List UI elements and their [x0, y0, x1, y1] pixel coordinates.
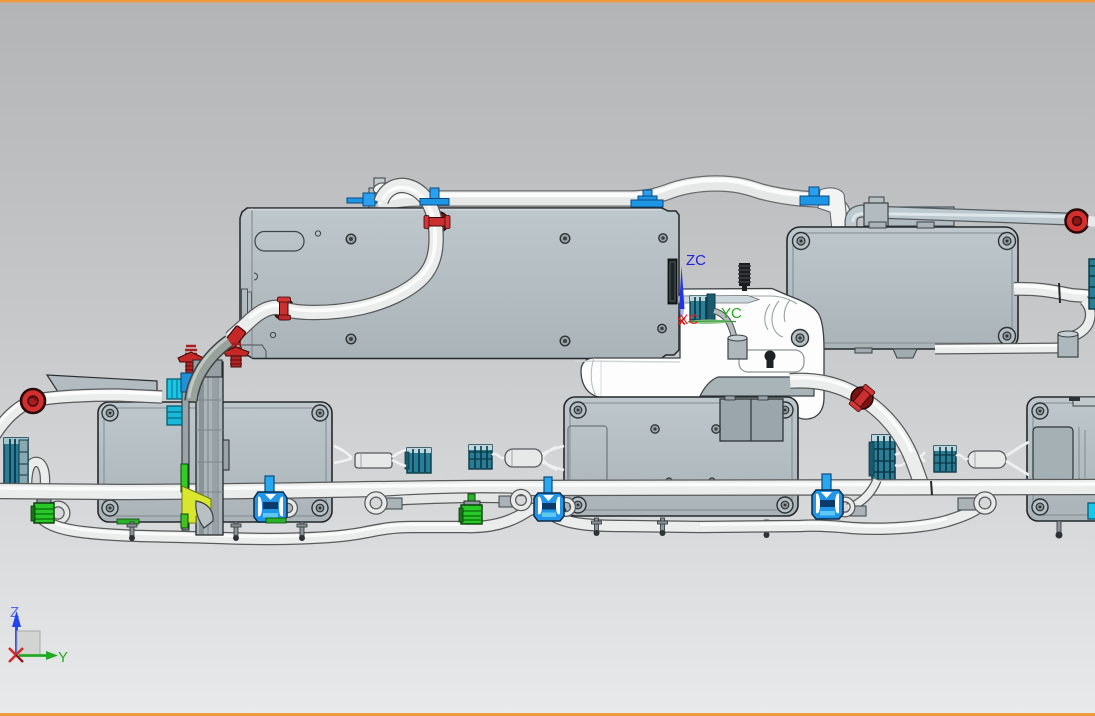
svg-text:Y: Y — [58, 649, 68, 666]
svg-text:XC: XC — [679, 311, 698, 327]
svg-text:ZC: ZC — [686, 252, 706, 269]
svg-text:YC: YC — [721, 305, 742, 322]
